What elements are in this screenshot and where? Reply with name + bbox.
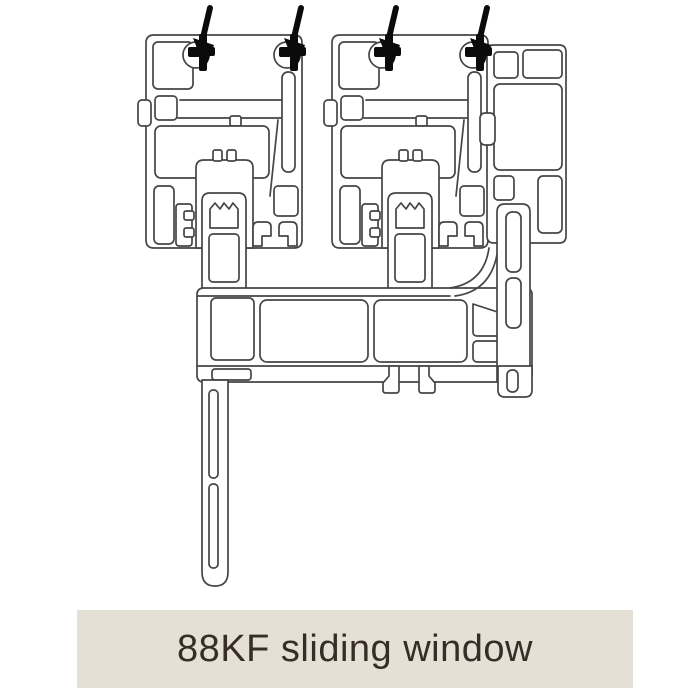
caption-bar: 88KF sliding window <box>77 610 633 688</box>
upright-chamber <box>395 234 425 282</box>
jamb-chamber <box>494 52 518 78</box>
gasket-holder <box>210 203 238 228</box>
frame-chamber <box>260 300 368 362</box>
caption-text: 88KF sliding window <box>177 628 533 671</box>
upright-chamber <box>209 234 239 282</box>
profile-cross-section-drawing <box>0 0 700 700</box>
jamb-chamber <box>523 50 562 78</box>
jamb-chamber <box>494 176 514 200</box>
frame-chamber <box>212 369 251 380</box>
bottom-track-frame-profile <box>197 193 532 586</box>
jamb-chamber <box>538 176 562 233</box>
leg-slot <box>209 390 218 478</box>
wall-slot <box>506 278 521 328</box>
wall-slot <box>506 212 521 272</box>
foot-slot <box>507 370 518 392</box>
leg-slot <box>209 484 218 568</box>
gasket-holder <box>396 203 424 228</box>
frame-chamber <box>374 300 467 362</box>
drawing-stage <box>0 0 700 700</box>
jamb-clip <box>480 113 495 145</box>
jamb-main-chamber <box>494 84 562 170</box>
frame-chamber <box>211 298 254 360</box>
